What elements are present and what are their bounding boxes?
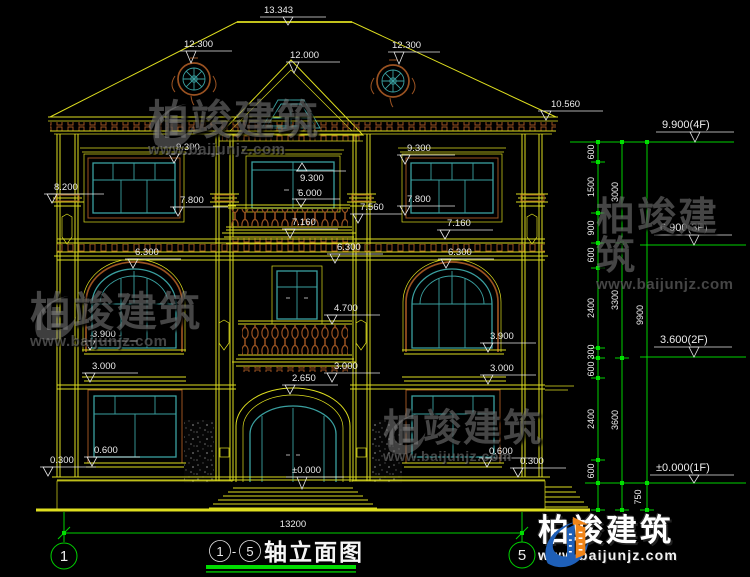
f3-balcony-door	[242, 150, 344, 212]
dim-f3-balcony: 7.560	[350, 202, 402, 223]
chain-300: 300	[586, 344, 596, 359]
right-dimension-chain	[570, 140, 746, 512]
dim-f3-win-left-head-text: 9.300	[176, 142, 200, 153]
dim-f2-ledge-left: 3.000	[82, 361, 138, 382]
dim-f3-win-left-head: 9.300	[166, 142, 224, 163]
chain-600-b: 600	[586, 247, 596, 262]
title-axis-from: 1	[216, 544, 223, 559]
dim-f2-ledge-right-text: 3.000	[490, 363, 514, 374]
f2-center-window	[272, 266, 322, 324]
dim-f3-door-sill-text: 6.000	[298, 188, 322, 199]
chain-9900: 9900	[635, 305, 645, 325]
dim-f2-head-right-text: 6.300	[448, 247, 472, 258]
oculus-window-left	[172, 58, 216, 105]
dim-f3-door-head-text: 9.300	[300, 173, 324, 184]
dim-f1-floor-text: ±0.000	[292, 465, 321, 476]
dim-f3-balcony-text: 7.560	[360, 202, 384, 213]
axis-bubble-left-number: 1	[60, 548, 68, 565]
dim-f2-win-left-sill: 3.900	[82, 329, 138, 350]
chain-3600: 3600	[610, 410, 620, 430]
dim-f1-plinth-right-text: 0.300	[520, 456, 544, 467]
dim-roof-right-text: 12.300	[392, 40, 421, 51]
level-4f: 9.900(4F)	[656, 119, 734, 142]
chain-numbers: 6001500900600240030060024006003000330036…	[586, 144, 645, 504]
level-4f-text: 9.900(4F)	[662, 119, 710, 131]
dim-gable-text: 12.000	[290, 50, 319, 61]
f3-balcony	[222, 205, 356, 244]
axis-bubble-left: 1	[51, 543, 77, 569]
chain-2400-b: 2400	[586, 409, 596, 429]
dim-f3-win-right-sill-text: 7.800	[407, 194, 431, 205]
level-2f: 3.600(2F)	[654, 334, 732, 357]
level-2f-text: 3.600(2F)	[660, 334, 708, 346]
dim-f2-ledge-left-text: 3.000	[92, 361, 116, 372]
level-1f: ±0.000(1F)	[650, 462, 734, 483]
dim-f1-win-left-sill-text: 0.600	[94, 445, 118, 456]
title-separator: -	[232, 544, 236, 559]
chain-900: 900	[586, 220, 596, 235]
dim-left-capital-text: 8.200	[54, 182, 78, 193]
dim-f1-door-head: 2.650	[282, 373, 338, 394]
dim-f3-door-sill: 6.000	[292, 188, 340, 207]
dim-f3-door-head: 9.300	[296, 163, 346, 184]
drawing-title: 1 - 5 轴立面图	[206, 539, 364, 573]
chain-600-d: 600	[586, 463, 596, 478]
dim-f2-win-right-sill-text: 3.900	[490, 331, 514, 342]
chain-3000: 3000	[610, 182, 620, 202]
title-axis-to: 5	[246, 544, 253, 559]
overall-width-label: 13200	[280, 519, 306, 530]
f3-window-right	[398, 148, 506, 222]
dim-ridge-text: 13.343	[264, 5, 293, 16]
eave-cornice	[48, 117, 558, 134]
chain-750: 750	[633, 489, 643, 504]
dim-f1-door-head-text: 2.650	[292, 373, 316, 384]
dim-eave-right: 10.560	[538, 99, 603, 120]
dim-f1-plinth-left-text: 0.300	[50, 455, 74, 466]
dim-roof-left-text: 12.300	[184, 39, 213, 50]
axis-bubble-right: 5	[509, 542, 535, 568]
chain-600-a: 600	[586, 144, 596, 159]
chain-600-c: 600	[586, 361, 596, 376]
chain-1500: 1500	[586, 177, 596, 197]
title-underline-2	[206, 571, 356, 573]
axis-bubble-right-number: 5	[518, 547, 526, 564]
hip-roof	[50, 22, 556, 117]
chain-3300: 3300	[610, 290, 620, 310]
side-steps-right	[545, 487, 588, 507]
dim-f2-balcony-text: 4.700	[334, 303, 358, 314]
dim-f1-win-right-sill-text: 0.600	[489, 446, 513, 457]
wall-edges	[57, 134, 542, 481]
dim-f3-band-right: 7.160	[437, 218, 493, 239]
title-underline	[206, 565, 356, 569]
dim-f2-balcony-floor-text: 3.000	[334, 361, 358, 372]
chain-2400-a: 2400	[586, 298, 596, 318]
level-1f-text: ±0.000(1F)	[656, 462, 710, 474]
dim-left-capital: 8.200	[44, 182, 104, 203]
dim-f1-plinth-right: 0.300	[510, 456, 566, 477]
title-text: 轴立面图	[264, 539, 364, 565]
dim-f2-win-left-sill-text: 3.900	[92, 329, 116, 340]
dim-f2-head-center-text: 6.300	[337, 242, 361, 253]
level-3f: 6.900(3F)	[654, 222, 732, 245]
level-3f-text: 6.900(3F)	[660, 222, 708, 234]
brand-logo: 柏竣建筑 www.baijunjz.com	[538, 515, 678, 562]
dim-f3-win-right-head-text: 9.300	[407, 143, 431, 154]
dim-f2-win-right-sill: 3.900	[480, 331, 536, 352]
brand-logo-icon	[538, 515, 596, 573]
low-band	[57, 385, 574, 390]
bottom-dimension: 13200	[58, 512, 528, 542]
dim-f3-band-right-text: 7.160	[447, 218, 471, 229]
dim-f2-head-left-text: 6.300	[135, 247, 159, 258]
dim-eave-right-text: 10.560	[551, 99, 580, 110]
entrance-steps	[209, 482, 377, 509]
dim-f3-win-left-sill-text: 7.800	[180, 195, 204, 206]
oculus-window-right	[371, 60, 415, 107]
elevation-drawing-canvas: 13200 1 5 1 - 5 轴立面图 13.34312.30012.3001…	[0, 0, 750, 577]
dim-roof-left: 12.300	[180, 39, 232, 63]
dim-f3-band-center-text: 7.160	[292, 217, 316, 228]
dim-gable: 12.000	[286, 50, 340, 73]
